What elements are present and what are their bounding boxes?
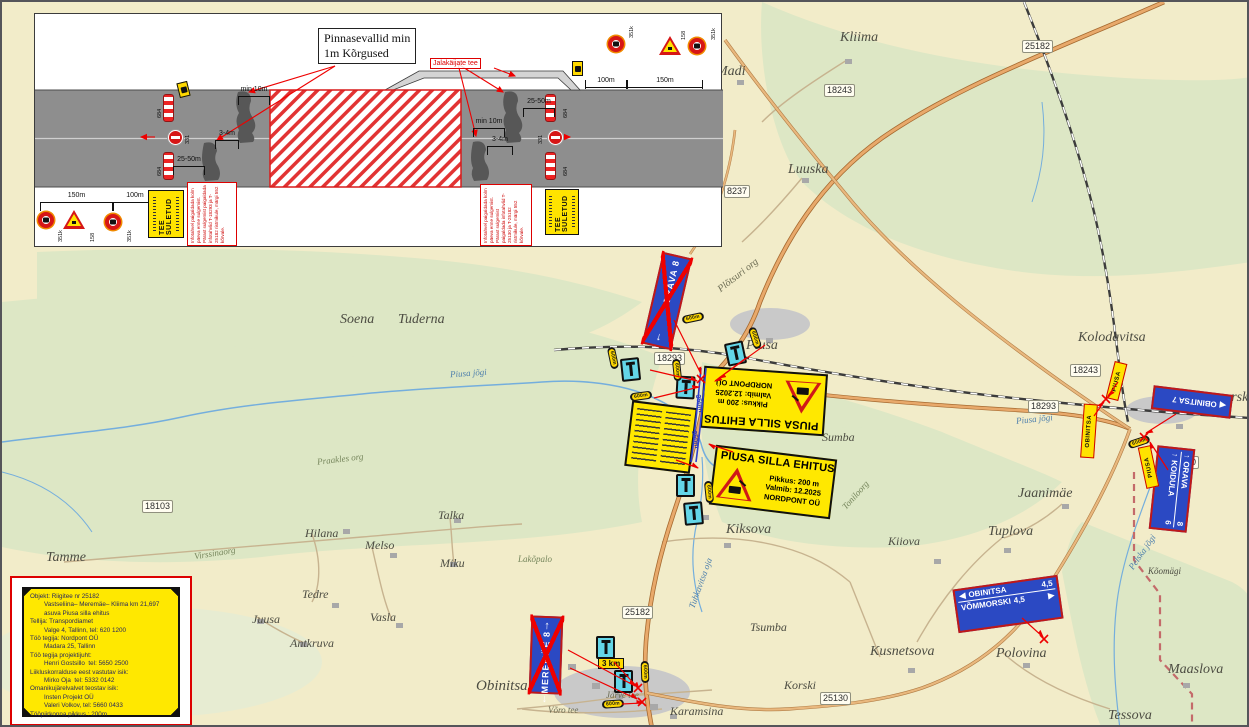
road-number-badge: 18293 [1028, 400, 1059, 413]
up-arrow-icon: ↑ [544, 621, 550, 631]
distance-plate: 600m [602, 699, 625, 709]
roadworks-warning-icon [716, 465, 756, 501]
place-label: Kiiova [888, 534, 920, 549]
valley-label: Toniloorg [840, 479, 871, 512]
place-label: Tuderna [398, 312, 445, 328]
place-label: Kiksova [726, 522, 771, 538]
road-number-badge: 18243 [1070, 364, 1101, 377]
valley-label: Praakles org [317, 451, 364, 467]
place-label: Juusa [252, 612, 280, 627]
place-label: Antkruva [290, 636, 334, 651]
dimension-min10m: min 10m [238, 96, 270, 97]
valley-label: Virssinaorg [193, 545, 236, 561]
dimension-25-50m: 25-50m [173, 166, 205, 167]
info-line: Tellija: Transpordiamet [30, 618, 172, 626]
distance: 6 [1163, 520, 1172, 525]
info-line: Liikluskorralduse eest vastutav isik: [30, 669, 172, 677]
place-label: Kliima [840, 30, 878, 46]
place-label: Korski [784, 678, 816, 693]
sign-code: 158 [681, 31, 687, 40]
road-closed-plate: TEE SULETUD [545, 189, 579, 235]
dead-end-sign-icon [596, 636, 615, 659]
no-entry-sign-icon [168, 130, 183, 145]
sign-code: 351k [58, 230, 64, 242]
dimension-25-50m: 25-50m [523, 108, 555, 109]
info-line: Töö tegija: Nordpont OÜ [30, 635, 172, 643]
stream-label: Tuhkavitsa oja [687, 556, 714, 609]
prohibition-sign-icon [608, 36, 624, 52]
bridge-construction-sign-north: PIUSA SILLA EHITUS Pikkus: 200 m Valmib:… [700, 366, 828, 436]
place-label: Jaanimäe [1018, 486, 1072, 502]
sign-text: ORAVA [1179, 461, 1191, 489]
road-number-badge: 25130 [820, 692, 851, 705]
roadworks-warning-icon [783, 380, 821, 414]
place-label: Tuplova [988, 524, 1033, 540]
sign-code: 684 [563, 167, 569, 176]
river-label: Piusa jõgi [450, 367, 487, 380]
no-entry-sign-icon [548, 130, 563, 145]
roadworks-triangle-icon [659, 36, 681, 55]
distance-plate: 600m [630, 391, 653, 402]
info-line: Töö tegija projektijuht: [30, 652, 172, 660]
place-label: Sumba [822, 430, 855, 445]
dead-end-sign-icon [724, 340, 747, 366]
distance: 8 [1175, 521, 1184, 526]
sign-text: OBINITSA 7 [1172, 395, 1217, 409]
sign-code: 351k [127, 230, 133, 242]
dead-end-sign-icon [676, 474, 695, 497]
dimension-150m: 150m [40, 202, 113, 203]
info-line: Valeri Volkov, tel: 5660 0433 [30, 702, 172, 710]
info-board-note: Infotahvel paigaldada kolm päeva enne su… [187, 182, 237, 246]
down-arrow-icon: ↓ [542, 693, 548, 703]
note-line: 1m Kõrgused [324, 46, 410, 61]
info-line: Madara 25, Tallinn [30, 643, 172, 651]
roadworks-layout-inset: Pinnasevallid min 1m Kõrgused Jalakäijat… [34, 13, 722, 247]
river-label: Piusa jõgi [1016, 412, 1054, 426]
place-label: Obinitsa [476, 678, 528, 695]
work-zone-hatch [270, 90, 461, 187]
sign-text: ORAVA 8 [661, 259, 681, 305]
pedestrian-path-label: Jalakäijate tee [430, 58, 481, 69]
distance-plate-3km: 3 km [598, 658, 624, 669]
dimension-3-4m: 3-4m [487, 146, 513, 147]
bridge-construction-sign-south: PIUSA SILLA EHITUS Pikkus: 200 m Valmib:… [709, 445, 837, 519]
prohibition-sign-icon [689, 38, 705, 54]
down-arrow-icon: ↓ [655, 332, 663, 343]
sign-code: 351k [711, 28, 717, 40]
sign-code: 351k [629, 26, 635, 38]
road-number-badge: 18243 [824, 84, 855, 97]
place-label: Lakõpalo [518, 554, 552, 564]
road-number-badge: 8237 [724, 185, 750, 198]
place-label: Miku [440, 556, 465, 571]
place-label: Hilana [305, 526, 338, 541]
distance-plate: 600m [681, 312, 704, 324]
pedestrian-bypass [385, 71, 580, 90]
distance-plate: 600m [641, 661, 650, 683]
dimension-3-4m: 3-4m [215, 140, 239, 141]
detour-marker-piusa: PIUSA [1106, 361, 1128, 401]
distance-plate: 600m [607, 346, 619, 369]
place-label: Soena [340, 312, 374, 328]
info-board-note: Infotahvel paigaldada kolm päeva enne su… [480, 184, 532, 246]
sign-code: 331 [185, 135, 191, 144]
roadworks-triangle-icon [63, 210, 85, 229]
place-label: Vasla [370, 610, 396, 625]
barrier-icon [545, 152, 556, 180]
dead-end-sign-icon [614, 670, 633, 693]
project-info-card: Objekt: Riigitee nr 25182 Vastseliina– M… [22, 587, 180, 717]
street-label: Võro tee [548, 705, 578, 715]
place-label: Tsumba [750, 620, 787, 635]
valley-label: Plõtsuri org [716, 256, 761, 294]
prohibition-sign-icon [105, 214, 121, 230]
info-line: Objekt: Riigitee nr 25182 [30, 593, 172, 601]
road-number-badge: 25182 [1022, 40, 1053, 53]
place-label: Tedre [302, 587, 328, 602]
sign-code: 684 [157, 109, 163, 118]
place-label: Tessova [1108, 708, 1152, 724]
traffic-management-plan-map: Kliima Madi Luuska Kolodavitsa Soena Tud… [0, 0, 1249, 727]
info-line: asuva Piusa silla ehitus [30, 610, 172, 618]
sign-code: 158 [90, 233, 96, 242]
left-arrow-icon: ◀ [959, 591, 966, 601]
note-line: Pinnasevallid min [324, 31, 410, 46]
place-label: Tamme [46, 550, 86, 566]
dead-end-sign-icon [620, 357, 641, 382]
right-arrow-icon: ▶ [1047, 591, 1054, 601]
info-line: Henri Gostsillo tel: 5650 2500 [30, 660, 172, 668]
road-closed-plate: TEE SULETUD [148, 190, 184, 238]
dimension-150m: 150m [627, 87, 703, 88]
info-line: Tööpiirkonna pikkus : 200m [30, 711, 172, 719]
detour-cancelled-orava-sign: ORAVA 8 ↓ [642, 252, 692, 350]
dimension-100m: 100m [585, 87, 627, 88]
dead-end-sign-icon [683, 501, 704, 526]
project-info-box: Objekt: Riigitee nr 25182 Vastseliina– M… [10, 576, 192, 726]
road-number-badge: 25182 [622, 606, 653, 619]
sign-code: 684 [157, 167, 163, 176]
worker-sign-icon [572, 61, 583, 76]
place-label: Melso [365, 538, 394, 553]
road-number-badge: 18103 [142, 500, 173, 513]
direction-sign-obinitsa-vommorski: ◀OBINITSA4,5 VÕMMORSKI4,5▶ [952, 575, 1063, 633]
barrier-icon [163, 94, 174, 122]
sign-code: 684 [563, 109, 569, 118]
place-label: Karamsina [670, 704, 723, 719]
place-label: Kusnetsova [870, 644, 935, 660]
sign-list-placard [624, 400, 698, 474]
place-label: Kolodavitsa [1078, 330, 1146, 346]
sign-text: MEREMÄE 8 [540, 631, 552, 694]
distance: 4,5 [1041, 579, 1053, 589]
left-arrow-icon: ◀ [1219, 401, 1226, 411]
info-line: Omanikujärelvalvet teostav isik: [30, 685, 172, 693]
detour-marker-obinitsa: OBINITSA [1080, 404, 1098, 459]
info-line: Valge 4, Tallinn, tel: 620 1200 [30, 627, 172, 635]
place-label: Maaslova [1168, 662, 1223, 678]
info-line: Insten Projekt OÜ [30, 694, 172, 702]
detour-cancelled-meremae-sign: ↑ MEREMÄE 8 ↓ [529, 615, 564, 694]
distance: 4,5 [1013, 595, 1025, 605]
place-label: Talka [438, 508, 464, 523]
place-label: Luuska [788, 162, 828, 178]
info-line: Mirko Oja tel: 5332 0142 [30, 677, 172, 685]
sign-code: 331 [538, 135, 544, 144]
prohibition-sign-icon [38, 212, 54, 228]
dimension-min10m: min 10m [473, 128, 505, 129]
place-label: Kõomägi [1148, 566, 1181, 576]
up-arrow-icon: ↑ [1170, 453, 1179, 458]
place-label: Polovina [996, 646, 1047, 662]
berm-note-box: Pinnasevallid min 1m Kõrgused [318, 28, 416, 64]
info-line: Vastseliina– Meremäe– Kliima km 21,697 [30, 601, 172, 609]
direction-sign-orava-koidula: ↑ORAVA8 ↑KOIDULA6 [1149, 445, 1196, 533]
up-arrow-icon: ↑ [1182, 454, 1191, 459]
